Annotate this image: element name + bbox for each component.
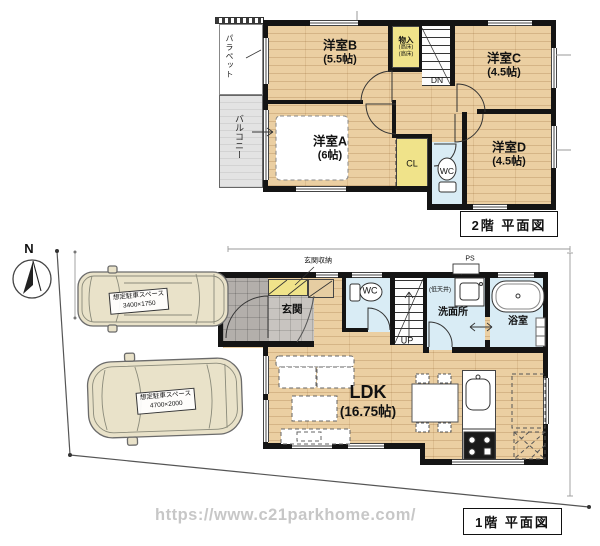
room-d-label: 洋室D (4.5帖) <box>492 141 526 170</box>
vanity-icon <box>455 278 484 306</box>
washroom-label: 洗面所 <box>438 307 468 319</box>
floor2-caption: 2階 平面図 <box>460 211 558 237</box>
closet-label: CL <box>406 159 418 170</box>
toilet2f-label: WC <box>440 166 454 176</box>
north-arrow <box>13 260 51 298</box>
bathroom-label: 浴室 <box>508 316 528 328</box>
plan-annotations <box>0 0 600 546</box>
toilet1f-label: WC <box>363 286 378 297</box>
parapet-label: パラペット <box>224 34 235 79</box>
pipe-space-label: PS <box>465 256 474 265</box>
dining-set <box>412 374 458 432</box>
stairs-up-label: UP <box>401 336 414 347</box>
room-b-label: 洋室B (5.5帖) <box>323 39 357 68</box>
storage-label: 物入 (高床) (高床) <box>399 36 414 59</box>
balcony-label: バルコニー <box>233 114 246 159</box>
entrance-label: 玄関 <box>282 304 303 317</box>
bathtub-icon <box>492 281 545 346</box>
kitchen-sink-icon <box>462 375 496 429</box>
low-ceiling-label: (低天井) <box>429 287 451 294</box>
floor-plan: パラペット バルコニー 洋室B (5.5帖) 洋室C (4.5帖) 洋室A (6… <box>0 0 600 546</box>
ldk-label: LDK (16.75帖) <box>340 382 396 420</box>
watermark-url: https://www.c21parkhome.com/ <box>155 506 416 525</box>
stove-icon <box>464 432 495 459</box>
entrance-storage-label: 玄関収納 <box>304 258 332 267</box>
floor1-caption: 1階 平面図 <box>463 508 562 535</box>
refrigerator-space <box>512 374 545 459</box>
north-label: N <box>24 241 33 257</box>
room-a-label: 洋室A (6帖) <box>313 135 347 164</box>
stairs-down-label: DN <box>431 75 443 85</box>
room-c-label: 洋室C (4.5帖) <box>487 52 521 81</box>
